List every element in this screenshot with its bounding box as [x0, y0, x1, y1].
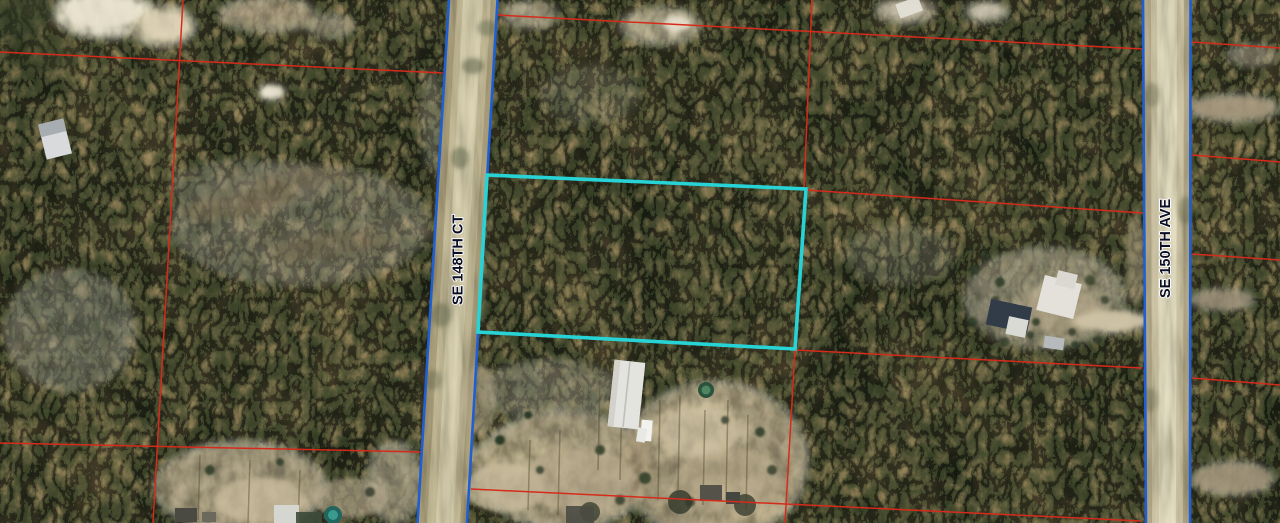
svg-text:SE 150TH AVE: SE 150TH AVE	[1158, 199, 1174, 298]
svg-text:SE 148TH CT: SE 148TH CT	[451, 215, 467, 305]
